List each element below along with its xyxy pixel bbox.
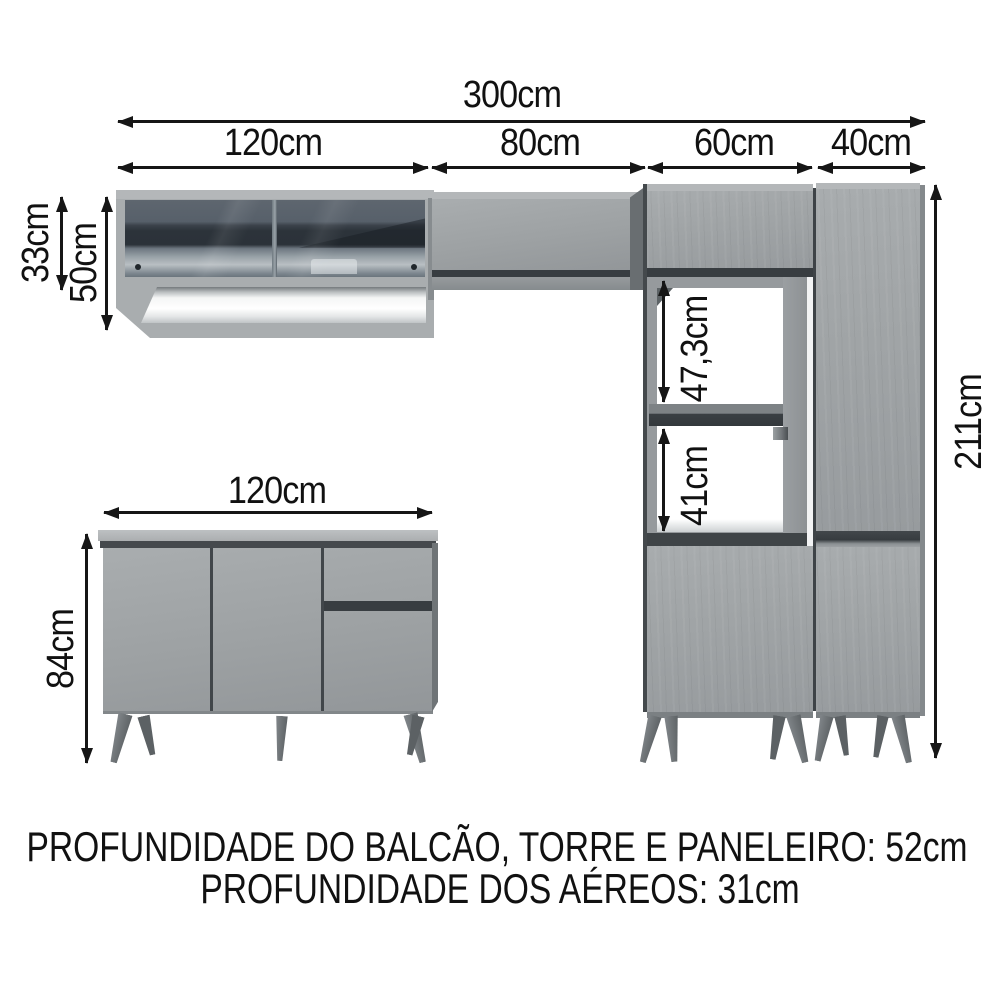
paneleiro-divider xyxy=(816,531,920,547)
cabinet-leg xyxy=(870,715,889,758)
base-cabinet-right-edge xyxy=(432,543,438,712)
cabinet-leg xyxy=(664,716,681,763)
footer-depth-line2: PROFUNDIDADE DOS AÉREOS: 31cm xyxy=(200,868,799,910)
countertop-edge xyxy=(100,541,436,548)
glass-door-divider xyxy=(272,200,277,277)
wall-cabinet-80-bottom-groove xyxy=(432,270,645,277)
cabinet-leg xyxy=(766,715,786,760)
paneleiro-body xyxy=(816,183,920,718)
dim-label-aereo-total-height: 50cm xyxy=(65,223,103,303)
base-cabinet-120 xyxy=(98,530,438,716)
dim-arrow-upper-niche xyxy=(662,281,665,402)
paneleiro-40 xyxy=(813,183,925,718)
dim-label-total-width: 300cm xyxy=(463,76,561,114)
countertop xyxy=(98,530,438,541)
sliding-glass-doors xyxy=(125,200,425,277)
dim-arrow-balcao-height xyxy=(85,534,88,763)
tower-upper-door xyxy=(647,191,813,268)
dim-label-upper-niche-height: 47,3cm xyxy=(676,296,714,403)
cabinet-leg xyxy=(137,715,159,757)
cabinet-leg xyxy=(786,714,812,764)
glass-door-knob-right xyxy=(411,264,417,270)
paneleiro-right-edge xyxy=(920,185,925,716)
glass-door-knob-left xyxy=(135,264,141,270)
dim-arrow-aereo-total-height xyxy=(105,197,108,330)
cabinet-leg xyxy=(811,715,834,763)
dim-arrow-lower-niche xyxy=(662,429,665,531)
wall-cabinet-120 xyxy=(116,190,434,338)
cabinet-leg xyxy=(636,714,662,764)
glass-dishes xyxy=(311,259,357,274)
kitchen-dimension-diagram: 300cm 120cm 80cm 60cm 40cm 33cm 50cm 47,… xyxy=(0,0,1000,1000)
tower-top-edge xyxy=(647,184,813,191)
niche-door-handle xyxy=(773,427,788,440)
cabinet-leg xyxy=(891,714,915,764)
dim-label-paneleiro-width: 40cm xyxy=(831,124,911,162)
wall-cabinet-80 xyxy=(432,192,645,290)
cabinet-leg xyxy=(106,712,133,764)
dim-label-aereo-door-height: 33cm xyxy=(17,203,55,283)
dim-label-aereo-left-width: 120cm xyxy=(224,124,322,162)
tower-upper-groove xyxy=(647,268,813,277)
dim-label-lower-niche-height: 41cm xyxy=(676,446,714,526)
door-divider-2 xyxy=(321,548,324,714)
tower-60 xyxy=(643,184,813,718)
drawer-groove xyxy=(324,601,433,611)
niche-shelf xyxy=(649,404,805,426)
tower-niche-zone xyxy=(647,277,813,546)
niche-bottom-groove xyxy=(647,533,807,546)
dim-label-tower-width: 60cm xyxy=(694,124,774,162)
wall-cabinet-top-edge xyxy=(116,190,434,199)
tower-body xyxy=(647,184,813,718)
base-cabinet-body xyxy=(103,548,433,714)
dim-label-total-height: 211cm xyxy=(950,374,988,470)
base-cabinet-bottom-line xyxy=(103,711,433,714)
door-divider-1 xyxy=(210,548,213,714)
dim-arrow-total-height xyxy=(934,185,937,758)
dim-arrow-aereo-left xyxy=(118,166,428,169)
wall-cabinet-80-bottom-panel xyxy=(432,277,645,290)
dim-arrow-tower xyxy=(648,166,812,169)
footer-depth-line1: PROFUNDIDADE DO BALCÃO, TORRE E PANELEIR… xyxy=(26,826,967,868)
paneleiro-lower-door xyxy=(816,547,920,712)
wall-cabinet-80-door xyxy=(432,199,645,270)
dim-label-balcao-width: 120cm xyxy=(228,472,326,510)
paneleiro-upper-door xyxy=(816,189,920,531)
tower-lower-door xyxy=(647,546,813,712)
wall-cabinet-80-top-edge xyxy=(432,192,645,199)
dim-arrow-aereo-right xyxy=(432,166,645,169)
dim-label-aereo-right-width: 80cm xyxy=(500,124,580,162)
cabinet-leg xyxy=(834,715,852,756)
cabinet-leg xyxy=(274,716,288,762)
open-shelf-niche xyxy=(141,287,426,323)
dim-arrow-paneleiro xyxy=(818,166,925,169)
niche-right-column xyxy=(783,277,807,546)
dim-label-balcao-height: 84cm xyxy=(42,609,80,689)
